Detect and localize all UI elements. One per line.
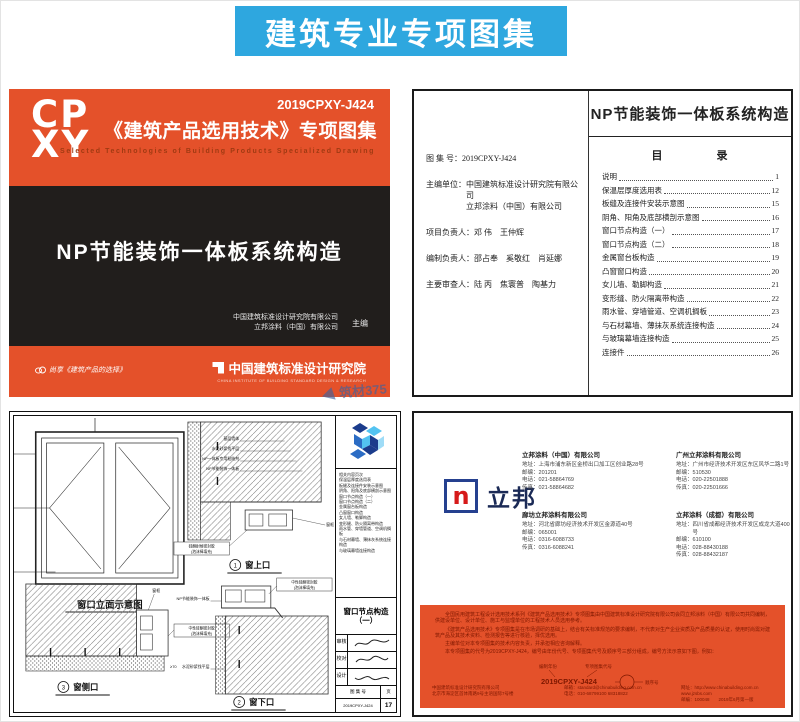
publisher-page: n 立邦 立邦涂料（中国）有限公司 地址：上海市浦东新区金桥出口加工区创业路28… <box>412 411 793 717</box>
title-block-column: 相关内容页次 保温层厚度选用表 板缝及连接件安装示意图 阴角、阳角及底部横剖示意… <box>335 416 396 712</box>
series-subtitle-en: Selected Technologies of Building Produc… <box>60 148 375 155</box>
company-block: 立邦涂料（中国）有限公司 地址：上海市浦东新区金桥出口加工区创业路28号 邮编：… <box>522 449 670 492</box>
toc-entry: 连接件26 <box>602 346 779 360</box>
atlas-code: 2019CPXY-J424 <box>277 97 374 112</box>
signature-scribble <box>348 671 396 683</box>
sheet-title: 窗口节点构造 （一） <box>336 598 396 635</box>
cover-main-title: NP节能装饰一体板系统构造 <box>9 236 390 266</box>
toc-entry: 窗口节点构造（二）18 <box>602 238 779 252</box>
notes-paragraphs: 全国民用建筑工程设计选用技术系列《建筑产品选用技术》专项图集由中国建筑标准设计研… <box>420 605 785 656</box>
company-block: 立邦涂料（成都）有限公司 地址：四川省成都经济技术开发区成龙大道400号 邮编：… <box>676 509 791 560</box>
watermark-icon <box>322 386 338 400</box>
svg-text:2: 2 <box>238 700 242 706</box>
cover-footer-left: 尚享《建筑产品的选择》 <box>35 365 126 375</box>
leader-adhesive: NP一体板专用粘结剂 <box>202 456 239 461</box>
svg-text:(泡沫棒填充): (泡沫棒填充) <box>294 585 316 590</box>
atlas-cover: CP XY 2019CPXY-J424 《建筑产品选用技术》专项图集 Selec… <box>9 89 390 397</box>
svg-text:窗侧口: 窗侧口 <box>73 682 98 692</box>
csbd-logo-icon <box>212 362 224 374</box>
toc-entry: 与石材幕墙、薄抹灰系统连接构造24 <box>602 319 779 333</box>
leader-window-frame-2: 窗框 <box>152 588 160 593</box>
nippon-logo-icon: n <box>444 479 478 513</box>
directory-column: 目 录 说明1 保温层厚度选用表12 板缝及连接件安装示意图15 阴角、阳角及底… <box>602 147 779 359</box>
signature-row-design: 设计 <box>336 669 396 686</box>
publisher-footer: 中国建筑标准设计研究院有限公司 北京市海淀区首体南路9号主语国际7号楼 邮箱：s… <box>432 685 775 703</box>
detail-caption-head: 1 窗上口 <box>227 560 281 574</box>
compile-lead-field: 编制负责人： 邵占奉 奚敬红 肖延娜 <box>426 253 584 264</box>
atlas-no-field: 图 集 号： 2019CPXY-J424 <box>426 153 584 164</box>
leader-mortar-2: 水泥砂浆找平层 <box>182 664 210 669</box>
address-column-2: 广州立邦涂料有限公司 地址：广州市经济技术开发区东区风华二路1号 邮编：5105… <box>676 449 791 577</box>
svg-text:窗上口: 窗上口 <box>245 560 270 570</box>
cover-footer-strip: 尚享《建筑产品的选择》 中国建筑标准设计研究院 CHINA INSTITUTE … <box>9 346 390 397</box>
svg-text:窗下口: 窗下口 <box>249 697 274 707</box>
reviewer-field: 主要审查人： 陆 丙 焦寰普 陶基力 <box>426 279 584 290</box>
svg-text:专项图集代号: 专项图集代号 <box>585 663 612 670</box>
drawing-frame: 窗口立面示意图 基层墙体 <box>13 415 397 713</box>
page-banner: 建筑专业专项图集 <box>235 6 567 56</box>
cover-footer-right: 中国建筑标准设计研究院 CHINA INSTITUTE OF BUILDING … <box>212 358 366 383</box>
detail-caption-sill: 2 窗下口 <box>231 697 285 711</box>
toc-entry: 板缝及连接件安装示意图15 <box>602 197 779 211</box>
toc-entry: 女儿墙、勒脚构造21 <box>602 278 779 292</box>
leader-neutral-sealant-2: 中性硅酮密封胶 <box>291 579 317 584</box>
watermark: 筑材375 <box>323 378 388 402</box>
leader-window-frame: 窗框 <box>326 522 334 527</box>
leader-mortar: 水泥砂浆找平层 <box>212 446 240 451</box>
signature-row-review: 审核 <box>336 635 396 652</box>
page-number: 17 <box>381 699 396 712</box>
page-label: 页 <box>381 686 396 699</box>
toc-entry: 雨水管、穿墙管道、空调机搁板23 <box>602 305 779 319</box>
signature-scribble <box>348 654 396 666</box>
leader-np-board: NP节能装饰一体板 <box>206 466 239 471</box>
contents-page: NP节能装饰一体板系统构造 图 集 号： 2019CPXY-J424 主编单位：… <box>412 89 793 397</box>
signature-row-check: 校对 <box>336 652 396 669</box>
toc-entry: 金属窗台板构造19 <box>602 251 779 265</box>
project-lead-field: 项目负责人： 邓 伟 王仲辉 <box>426 227 584 238</box>
screenshot-root: 建筑专业专项图集 CP XY 2019CPXY-J424 《建筑产品选用技术》专… <box>0 0 800 722</box>
back-cover-notes: 全国民用建筑工程设计选用技术系列《建筑产品选用技术》专项图集由中国建筑标准设计研… <box>420 605 785 708</box>
cube-logo-icon <box>346 421 386 463</box>
jamb-dim: ≥70 <box>170 664 177 669</box>
drawing-page: 窗口立面示意图 基层墙体 <box>9 411 401 717</box>
toc-entry: 窗口节点构造（一）17 <box>602 224 779 238</box>
address-column-1: 立邦涂料（中国）有限公司 地址：上海市浦东新区金桥出口加工区创业路28号 邮编：… <box>522 449 670 569</box>
leader-base-wall: 基层墙体 <box>223 436 239 441</box>
svg-text:3: 3 <box>62 685 66 691</box>
toc-entry: 阴角、阳角及底部横剖示意图16 <box>602 211 779 225</box>
drawing-area: 窗口立面示意图 基层墙体 <box>14 416 336 712</box>
window-detail-drawing: 窗口立面示意图 基层墙体 <box>14 416 336 712</box>
banner-title: 建筑专业专项图集 <box>265 9 537 54</box>
series-title: 《建筑产品选用技术》专项图集 <box>104 116 377 143</box>
toc-entry: 凸窗窗口构造20 <box>602 265 779 279</box>
chief-editor-field: 主编单位： 中国建筑标准设计研究院有限公司 立邦涂料（中国）有限公司 <box>426 179 584 212</box>
leader-weather-sealant: 硅酮耐候密封胶 <box>189 543 215 548</box>
toc-entry: 保温层厚度选用表12 <box>602 184 779 198</box>
svg-text:(泡沫棒填充): (泡沫棒填充) <box>191 549 213 554</box>
leader-np-board-2: NP节能装饰一体板 <box>176 596 209 601</box>
toc-entry: 与玻璃幕墙连接构造25 <box>602 332 779 346</box>
toc-entry: 说明1 <box>602 170 779 184</box>
atlas-no-value: 2019CPXY-J424 <box>336 699 381 712</box>
atlas-info-column: 图 集 号： 2019CPXY-J424 主编单位： 中国建筑标准设计研究院有限… <box>426 153 584 305</box>
svg-text:1: 1 <box>234 563 238 569</box>
svg-text:编制年份: 编制年份 <box>539 663 557 670</box>
detail-caption-jamb: 3 窗侧口 <box>55 682 109 696</box>
title-block-footer: 图 集 号 页 2019CPXY-J424 17 <box>336 686 396 712</box>
cover-editor-role: 主编 <box>352 318 368 329</box>
leader-neutral-sealant: 中性硅酮密封胶 <box>189 625 215 630</box>
toc-entry: 变形缝、防火隔离带构造22 <box>602 292 779 306</box>
cover-title-band: NP节能装饰一体板系统构造 中国建筑标准设计研究院有限公司 立邦涂料（中国）有限… <box>9 186 390 346</box>
signature-scribble <box>348 637 396 649</box>
sheet-index-list: 相关内容页次 保温层厚度选用表 板缝及连接件安装示意图 阴角、阳角及底部横剖示意… <box>336 469 396 598</box>
cpxy-cube-logo <box>336 416 396 469</box>
company-block: 广州立邦涂料有限公司 地址：广州市经济技术开发区东区风华二路1号 邮编：5105… <box>676 449 791 492</box>
cover-editors: 中国建筑标准设计研究院有限公司 立邦涂料（中国）有限公司 <box>233 313 338 333</box>
company-block: 廊坊立邦涂料有限公司 地址：河北省廊坊经济技术开发区金源道40号 邮编：0650… <box>522 509 670 552</box>
atlas-no-label: 图 集 号 <box>336 686 381 699</box>
cloud-icon <box>35 366 46 374</box>
directory-title: 目 录 <box>602 147 779 163</box>
svg-text:(泡沫棒填充): (泡沫棒填充) <box>191 631 213 636</box>
contents-page-title: NP节能装饰一体板系统构造 <box>589 91 791 137</box>
